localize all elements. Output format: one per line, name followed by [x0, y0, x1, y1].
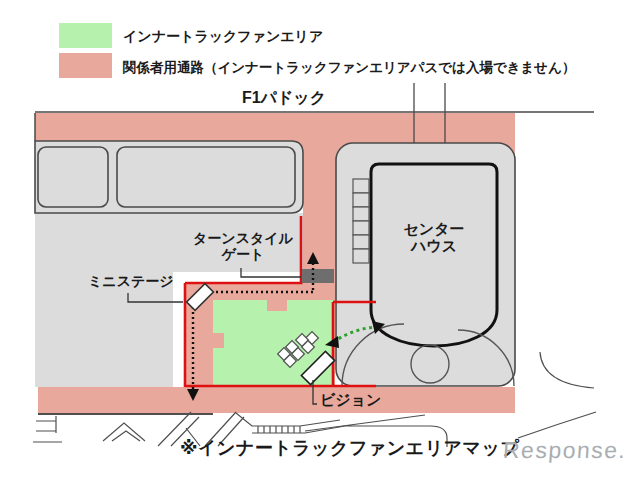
- pit-bay-left: [38, 147, 108, 207]
- label-turnstile-gate: ターンスタイル ゲート: [193, 231, 293, 262]
- label-center-house: センター ハウス: [392, 221, 476, 255]
- pit-bay-right: [117, 147, 295, 207]
- label-turnstile-line2: ゲート: [222, 246, 265, 262]
- label-mini-stage: ミニステージ: [88, 274, 174, 290]
- center-house-building: [371, 164, 497, 346]
- fan-area-left-notch: [213, 333, 224, 348]
- label-turnstile-line1: ターンスタイル: [193, 230, 293, 246]
- label-vision: ビジョン: [320, 392, 381, 409]
- turnstile-gate: [302, 269, 334, 283]
- map-caption: ※インナートラックファンエリアマップ: [180, 436, 519, 460]
- label-center-house-line2: ハウス: [411, 237, 457, 254]
- label-center-house-line1: センター: [403, 220, 464, 237]
- fan-area-map-image: インナートラックファンエリア 関係者用通路（インナートラックファンエリアパスでは…: [0, 0, 640, 477]
- paddock-corridor-bottom: [38, 387, 515, 413]
- response-watermark: Response.: [502, 437, 627, 464]
- fan-area-top-notch: [267, 300, 287, 311]
- center-house-stairs: [353, 179, 369, 263]
